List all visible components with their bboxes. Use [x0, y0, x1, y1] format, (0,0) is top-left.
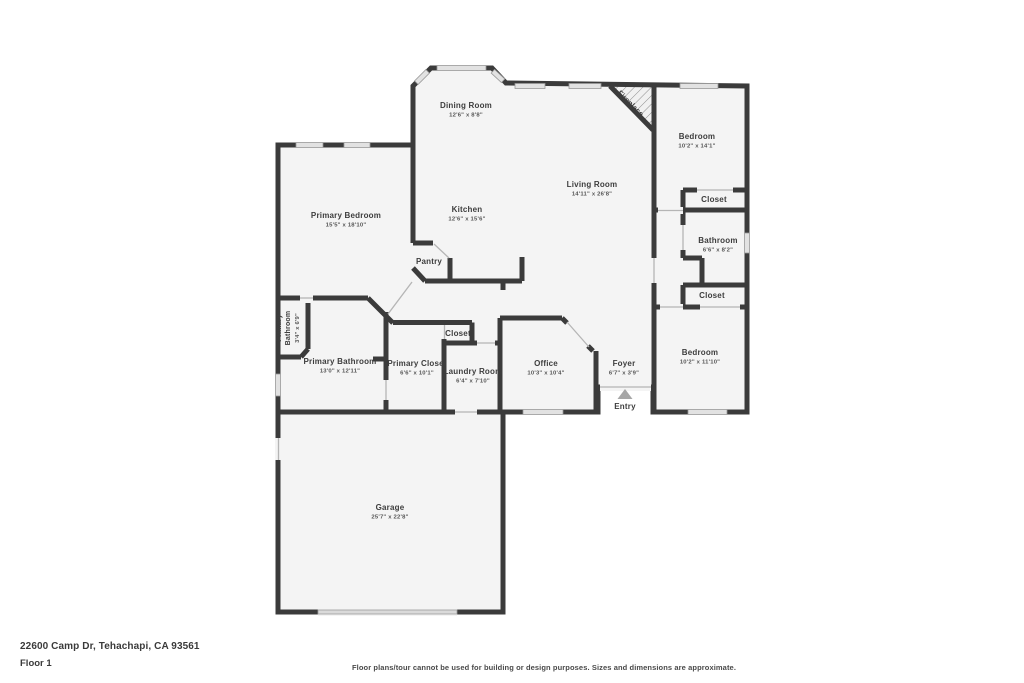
svg-text:10'3" x 10'4": 10'3" x 10'4" — [527, 371, 564, 377]
room-label-primary-bathroom-small: PrimaryBathroom3'4" x 6'9" — [276, 311, 301, 346]
room-label-bedroom-1: Bedroom10'2" x 14'1" — [678, 132, 715, 150]
svg-text:Closet: Closet — [445, 329, 471, 338]
svg-text:Living Room: Living Room — [567, 180, 618, 189]
svg-text:Bedroom: Bedroom — [679, 132, 716, 141]
address-text: 22600 Camp Dr, Tehachapi, CA 93561 — [20, 641, 200, 652]
svg-text:Primary: Primary — [276, 314, 283, 341]
floor-slab — [278, 68, 747, 612]
svg-text:Foyer: Foyer — [613, 359, 636, 368]
svg-text:Kitchen: Kitchen — [452, 205, 483, 214]
svg-text:Garage: Garage — [376, 503, 405, 512]
svg-text:6'4" x 7'10": 6'4" x 7'10" — [456, 379, 490, 385]
page: Dining Room12'6" x 8'8"Living Room14'11"… — [0, 0, 1024, 683]
svg-text:Entry: Entry — [614, 402, 636, 411]
room-label-living-room: Living Room14'11" x 26'8" — [567, 180, 618, 198]
svg-text:Primary Bedroom: Primary Bedroom — [311, 211, 381, 220]
svg-text:12'6" x 8'8": 12'6" x 8'8" — [449, 113, 483, 119]
svg-text:Bathroom: Bathroom — [285, 311, 292, 346]
room-label-pantry: Pantry — [416, 257, 442, 266]
svg-text:Closet: Closet — [701, 195, 727, 204]
svg-text:6'6" x 10'1": 6'6" x 10'1" — [400, 371, 434, 377]
svg-text:Office: Office — [534, 359, 558, 368]
svg-text:10'2" x 14'1": 10'2" x 14'1" — [678, 144, 715, 150]
svg-text:6'7" x 3'9": 6'7" x 3'9" — [609, 371, 639, 377]
room-label-bedroom-2: Bedroom10'2" x 11'10" — [680, 348, 720, 366]
svg-text:14'11" x 26'8": 14'11" x 26'8" — [572, 192, 612, 198]
room-label-kitchen: Kitchen12'6" x 15'6" — [448, 205, 485, 223]
svg-text:25'7" x 22'8": 25'7" x 22'8" — [371, 515, 408, 521]
svg-text:6'6" x 8'2": 6'6" x 8'2" — [703, 248, 733, 254]
svg-text:Bathroom: Bathroom — [698, 236, 737, 245]
svg-text:Primary Bathroom: Primary Bathroom — [304, 357, 377, 366]
svg-text:Closet: Closet — [699, 291, 725, 300]
room-label-foyer: Foyer6'7" x 3'9" — [609, 359, 639, 377]
svg-text:10'2" x 11'10": 10'2" x 11'10" — [680, 360, 720, 366]
room-label-entry: Entry — [614, 402, 636, 411]
svg-text:13'0" x 12'11": 13'0" x 12'11" — [320, 369, 360, 375]
svg-text:12'6" x 15'6": 12'6" x 15'6" — [448, 217, 485, 223]
room-label-bathroom: Bathroom6'6" x 8'2" — [698, 236, 737, 254]
svg-text:15'5" x 18'10": 15'5" x 18'10" — [326, 223, 367, 229]
room-label-closet-1: Closet — [701, 195, 727, 204]
room-label-garage: Garage25'7" x 22'8" — [371, 503, 408, 521]
svg-text:3'4" x 6'9": 3'4" x 6'9" — [295, 313, 301, 343]
floor-plan: Dining Room12'6" x 8'8"Living Room14'11"… — [0, 0, 1024, 683]
room-label-closet-2: Closet — [699, 291, 725, 300]
svg-text:Pantry: Pantry — [416, 257, 442, 266]
svg-text:Laundry Room: Laundry Room — [444, 367, 503, 376]
floor-plan-svg: Dining Room12'6" x 8'8"Living Room14'11"… — [0, 0, 1024, 683]
svg-text:Dining Room: Dining Room — [440, 101, 492, 110]
svg-text:Bedroom: Bedroom — [682, 348, 719, 357]
garage-door — [318, 610, 457, 614]
room-label-closet-3: Closet — [445, 329, 471, 338]
disclaimer-text: Floor plans/tour cannot be used for buil… — [352, 663, 736, 672]
svg-text:Primary Closet: Primary Closet — [387, 359, 446, 368]
floor-label: Floor 1 — [20, 658, 52, 669]
